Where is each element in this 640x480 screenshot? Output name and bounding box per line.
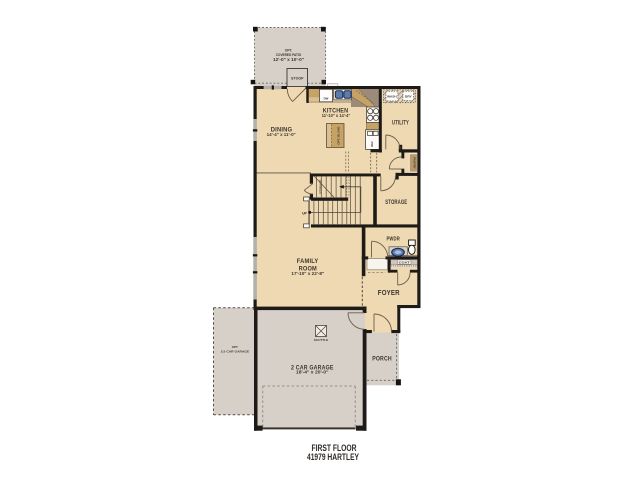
- svg-text:REF: REF: [370, 141, 374, 147]
- svg-text:UP: UP: [302, 211, 307, 215]
- svg-text:PWDR: PWDR: [386, 236, 400, 242]
- svg-text:PORCH: PORCH: [372, 355, 392, 362]
- svg-text:UTILITY: UTILITY: [392, 121, 409, 127]
- svg-text:OPT.: OPT.: [285, 48, 293, 52]
- svg-text:DRY: DRY: [405, 94, 412, 98]
- svg-text:2.5 CAR GARAGE: 2.5 CAR GARAGE: [221, 350, 250, 354]
- svg-text:STORAGE: STORAGE: [319, 180, 323, 194]
- svg-text:14'-4" x 11'-0": 14'-4" x 11'-0": [267, 132, 296, 137]
- svg-text:11'-10" x 14'-4": 11'-10" x 14'-4": [322, 113, 351, 118]
- svg-text:SCUTTLE: SCUTTLE: [314, 338, 329, 342]
- svg-text:DW: DW: [324, 97, 329, 101]
- svg-text:PANTRY: PANTRY: [412, 157, 416, 169]
- svg-text:OPT. ISLAND: OPT. ISLAND: [336, 127, 340, 145]
- svg-text:STORAGE: STORAGE: [385, 199, 407, 206]
- svg-text:STOOP: STOOP: [291, 77, 304, 81]
- svg-text:41979 HARTLEY: 41979 HARTLEY: [307, 452, 359, 462]
- svg-text:FOYER: FOYER: [378, 288, 400, 297]
- svg-text:18'-4" x 20'-0": 18'-4" x 20'-0": [296, 370, 329, 375]
- svg-text:COAT: COAT: [399, 261, 410, 265]
- svg-text:FAMILY: FAMILY: [297, 258, 319, 265]
- svg-text:WASH: WASH: [387, 95, 397, 99]
- svg-text:17'-10" x 22'-8": 17'-10" x 22'-8": [291, 271, 324, 276]
- svg-text:12'-0" x 10'-0": 12'-0" x 10'-0": [273, 57, 304, 62]
- svg-text:OPT.: OPT.: [232, 345, 239, 349]
